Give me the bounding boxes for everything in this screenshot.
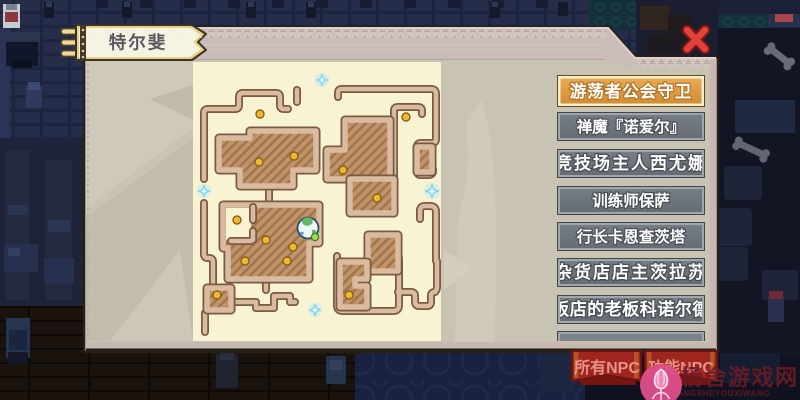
- svg-text:禅魔『诺爱尔』: 禅魔『诺爱尔』: [576, 117, 686, 136]
- svg-text:杨舍游戏网: 杨舍游戏网: [681, 365, 799, 390]
- svg-text:杂货店店主茨拉苏: 杂货店店主茨拉苏: [555, 262, 707, 282]
- svg-text:行长卡恩查茨塔: 行长卡恩查茨塔: [576, 227, 686, 246]
- svg-text:游荡者公会守卫: 游荡者公会守卫: [570, 81, 693, 101]
- svg-text:特尔斐: 特尔斐: [109, 33, 168, 53]
- svg-text:训练师保萨: 训练师保萨: [592, 191, 670, 210]
- svg-text:饭店的老板科诺尔德: 饭店的老板科诺尔德: [551, 299, 710, 319]
- svg-text:YANGSHEYOUXIWANG: YANGSHEYOUXIWANG: [672, 389, 770, 398]
- svg-text:所有NPC: 所有NPC: [574, 358, 640, 377]
- svg-text:竞技场主人西尤娜: 竞技场主人西尤娜: [555, 153, 707, 173]
